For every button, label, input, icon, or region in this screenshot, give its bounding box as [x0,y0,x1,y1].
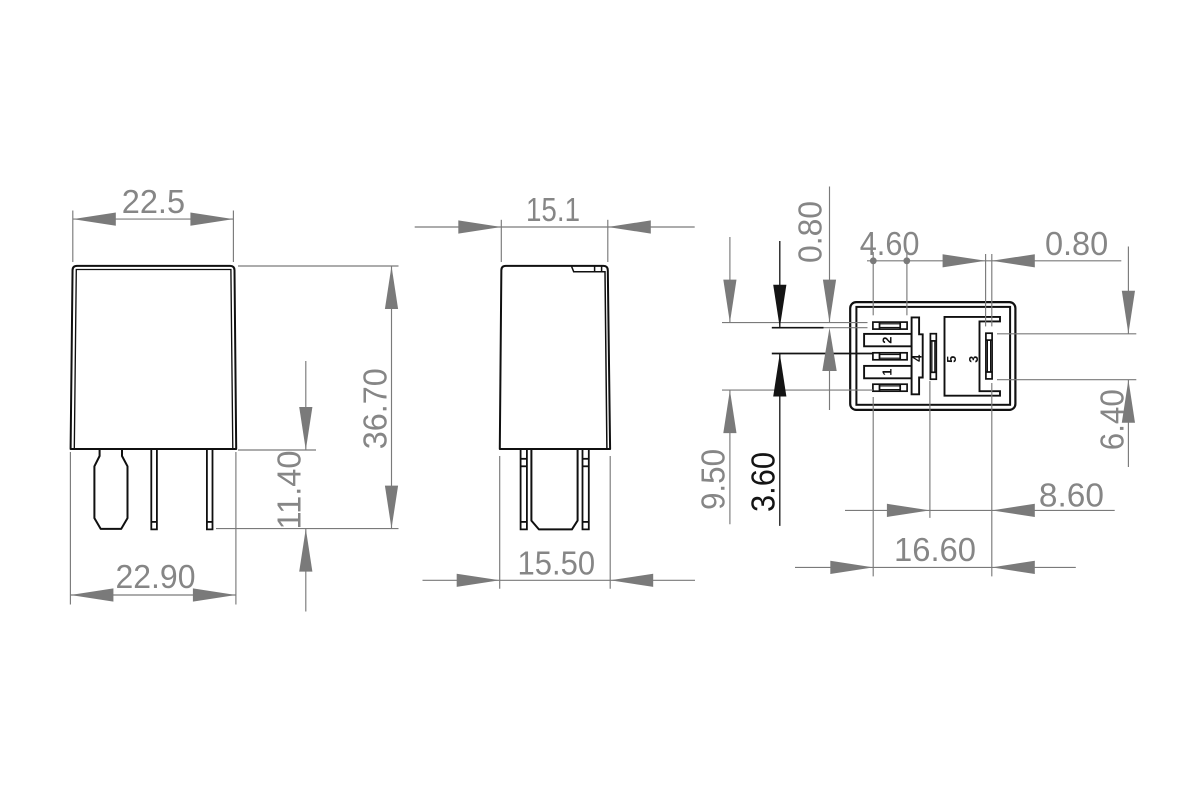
svg-text:3.60: 3.60 [746,452,783,512]
svg-text:15.1: 15.1 [526,192,580,229]
svg-text:36.70: 36.70 [358,368,395,449]
svg-text:4.60: 4.60 [860,226,920,263]
svg-text:9.50: 9.50 [696,449,733,510]
svg-text:15.50: 15.50 [518,546,596,583]
svg-text:5: 5 [945,356,959,363]
svg-text:11.40: 11.40 [272,451,309,530]
svg-text:3: 3 [967,356,981,363]
svg-text:0.80: 0.80 [1045,226,1108,263]
svg-text:22.90: 22.90 [116,559,196,596]
svg-text:6.40: 6.40 [1095,389,1132,450]
svg-text:4: 4 [911,355,925,362]
svg-text:22.5: 22.5 [122,184,185,221]
svg-text:8.60: 8.60 [1039,478,1104,515]
svg-text:16.60: 16.60 [894,532,976,569]
svg-text:0.80: 0.80 [793,201,830,263]
svg-text:2: 2 [881,337,895,344]
svg-text:1: 1 [881,369,895,376]
